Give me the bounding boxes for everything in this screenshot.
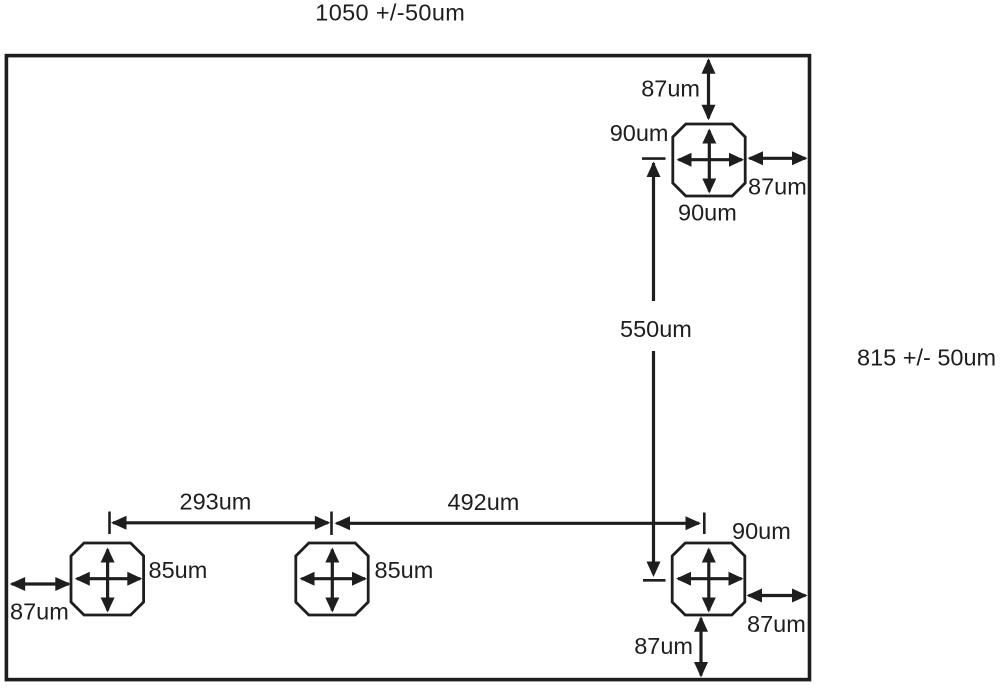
svg-text:90um: 90um (732, 518, 791, 544)
svg-text:85um: 85um (149, 557, 208, 583)
svg-text:815 +/- 50um: 815 +/- 50um (857, 345, 996, 371)
svg-text:87um: 87um (10, 599, 69, 625)
svg-text:550um: 550um (620, 316, 692, 342)
svg-text:90um: 90um (678, 200, 737, 226)
svg-text:90um: 90um (610, 120, 669, 146)
svg-text:87um: 87um (641, 76, 700, 102)
svg-text:1050 +/-50um: 1050 +/-50um (315, 0, 465, 26)
svg-text:293um: 293um (180, 489, 252, 515)
svg-text:87um: 87um (748, 174, 807, 200)
svg-text:492um: 492um (448, 489, 520, 515)
svg-text:87um: 87um (634, 633, 693, 659)
svg-text:87um: 87um (747, 611, 806, 637)
svg-text:85um: 85um (375, 557, 434, 583)
